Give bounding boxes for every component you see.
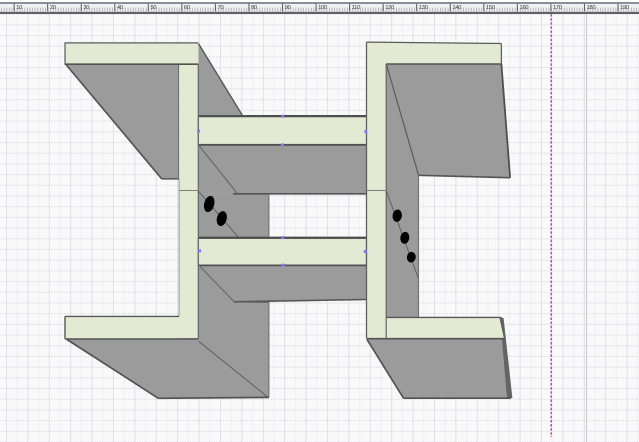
svg-text:60: 60 bbox=[184, 5, 190, 11]
svg-text:110: 110 bbox=[352, 5, 360, 11]
svg-text:190: 190 bbox=[620, 5, 629, 11]
svg-text:70: 70 bbox=[218, 5, 224, 11]
svg-text:40: 40 bbox=[117, 5, 123, 11]
svg-text:50: 50 bbox=[151, 5, 157, 11]
svg-text:150: 150 bbox=[486, 5, 495, 11]
svg-text:30: 30 bbox=[83, 5, 89, 11]
svg-text:90: 90 bbox=[285, 5, 291, 11]
svg-text:130: 130 bbox=[419, 5, 428, 11]
svg-text:20: 20 bbox=[50, 5, 56, 11]
svg-text:140: 140 bbox=[452, 5, 461, 11]
svg-text:160: 160 bbox=[520, 5, 529, 11]
svg-text:170: 170 bbox=[553, 5, 562, 11]
svg-text:100: 100 bbox=[318, 5, 327, 11]
svg-text:80: 80 bbox=[251, 5, 257, 11]
svg-text:10: 10 bbox=[16, 5, 22, 11]
svg-text:120: 120 bbox=[385, 5, 394, 11]
svg-text:180: 180 bbox=[587, 5, 596, 11]
